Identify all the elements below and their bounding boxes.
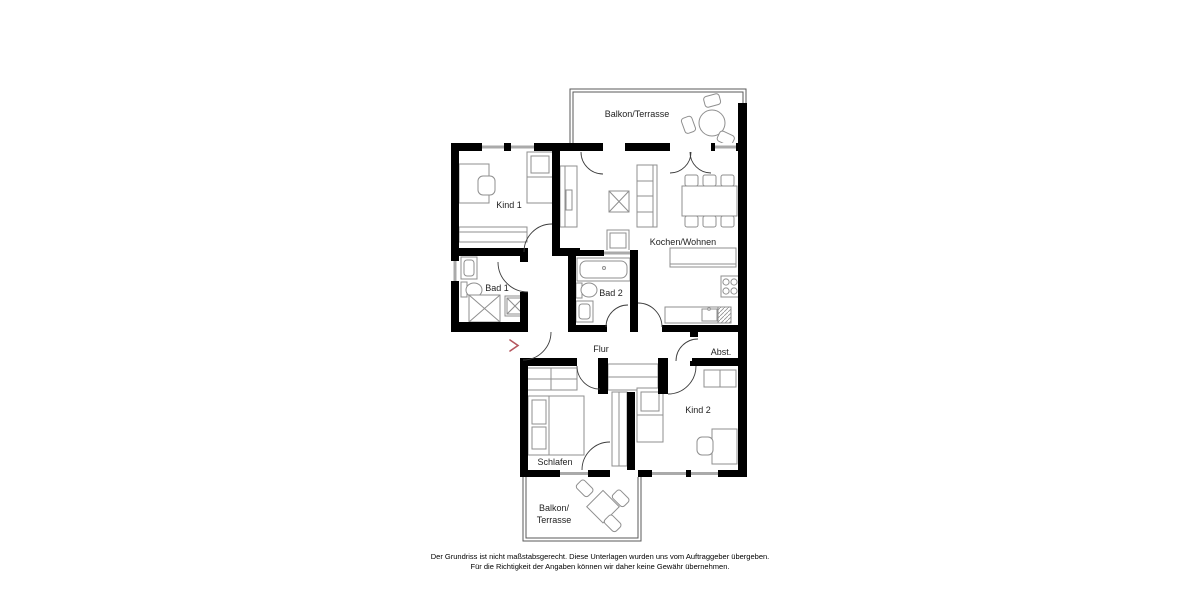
door-opening [670,143,711,151]
window-glass [454,261,457,281]
room-label-balkon-bottom-line1: Balkon/ [539,503,570,513]
stove-burner [723,279,729,285]
room-label-kind1: Kind 1 [496,200,522,210]
dining-chair [703,216,716,227]
furniture [459,93,739,533]
kind1-chair [478,176,495,195]
stove-burner [731,279,737,285]
wall [568,250,576,332]
kind2-chair [697,437,713,455]
dining-chair [685,216,698,227]
door-swing-balcony-living [581,152,603,174]
door-swing-balcony-schlafen [582,442,610,470]
floorplan-page: Balkon/Terrasse Kind 1 Kochen/Wohnen Bad… [0,0,1200,600]
kitchen-sink [702,309,717,321]
room-label-kochen-wohnen: Kochen/Wohnen [650,237,716,247]
bad2-sink-basin [579,304,590,319]
door-swing-kind2 [668,366,696,394]
entrance-chevron-icon [510,340,518,351]
window-glass [560,472,588,475]
wall [451,248,528,256]
dining-chair [703,175,716,186]
wall [692,358,747,366]
wall [662,325,747,332]
door-swing-abst [676,339,698,361]
armchair-seat [610,233,626,248]
stove-burner [723,288,729,294]
window-glass [691,472,718,475]
room-label-flur: Flur [593,344,609,354]
wall [686,470,691,477]
kind1-sideboard [459,227,527,242]
bad1-sink-basin [464,260,474,276]
disclaimer-line1: Der Grundriss ist nicht maßstabsgerecht.… [431,552,770,561]
wall [718,470,747,477]
room-label-balkon-bottom-line2: Terrasse [537,515,572,525]
kind1-bed-pillow [531,156,549,173]
kitchen-drainer [718,307,731,323]
wall [588,470,610,477]
wall [627,392,635,477]
room-label-bad2: Bad 2 [599,288,623,298]
kitchen-tap [708,308,711,311]
dining-chair [685,175,698,186]
dining-chair [721,216,734,227]
wall [630,250,638,332]
door-swing-entrance [523,332,551,360]
wall [520,358,528,477]
window-glass [482,146,504,149]
window-glass [715,146,736,149]
room-label-balkon-top: Balkon/Terrasse [605,109,670,119]
living-shelf-detail [566,190,572,210]
door-swing-double-left [670,152,691,173]
wall [568,325,607,332]
bathtub-drain [603,267,606,270]
wall [552,143,560,256]
wall [690,332,698,337]
wall [638,470,652,477]
disclaimer: Der Grundriss ist nicht maßstabsgerecht.… [431,552,770,571]
door-swing-kind1 [524,224,552,252]
door-swing-bad2 [606,305,628,327]
wall [738,103,747,477]
schlafen-bed-pillow [532,427,546,449]
room-label-abst: Abst. [711,347,732,357]
bad2-toilet [581,283,597,297]
wall [520,256,528,262]
wall [520,470,560,477]
wall [658,358,668,394]
balcony-chair [575,479,594,498]
door-swing-schlafen [577,366,600,389]
kind2-desk [712,429,737,464]
room-label-schlafen: Schlafen [537,457,572,467]
balcony-chair [681,115,697,134]
door-swing-double-right [690,152,711,173]
wall [451,143,459,332]
schlafen-bed-pillow [532,400,546,424]
wall [451,322,523,332]
room-label-bad1: Bad 1 [485,283,509,293]
window-glass [511,146,534,149]
stove-burner [731,288,737,294]
kind2-bed-pillow [641,392,659,411]
room-label-kind2: Kind 2 [685,405,711,415]
disclaimer-line2: Für die Richtigkeit der Angaben können w… [471,562,730,571]
window-glass [652,472,686,475]
balcony-chair [703,93,721,108]
door-swing-living-entry [638,303,662,327]
window-glass [604,252,630,255]
floorplan-drawing: Balkon/Terrasse Kind 1 Kochen/Wohnen Bad… [0,0,1200,600]
door-opening [603,143,625,151]
stove [721,276,739,297]
dining-chair [721,175,734,186]
door-opening [610,470,638,477]
dining-table [682,186,737,216]
